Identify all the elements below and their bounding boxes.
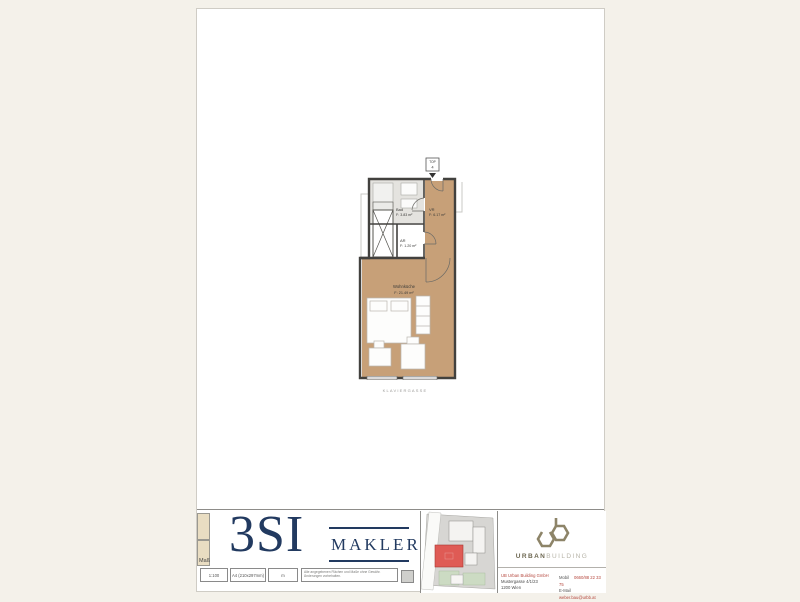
room-ar-name: AR: [400, 238, 406, 243]
scale-cell: 1:100: [200, 568, 228, 582]
room-bad-name: Bad: [396, 207, 403, 212]
broker-logo-main: 3SI: [229, 509, 304, 561]
developer-divider: [498, 567, 606, 568]
broker-logo-sub: MAKLER: [331, 535, 421, 555]
room-vr-area: F: 6.17 m²: [429, 213, 446, 217]
site-small-building: [451, 575, 463, 584]
room-wohnkueche-area: F: 21.49 m²: [394, 291, 414, 295]
floor-plan-drawing: TOP 4 Bad F: 3.83 m² VR F: 6.17 m² AR F:…: [347, 154, 467, 406]
developer-section: URBANBUILDING UB Urban Building GmbH Mus…: [498, 511, 606, 593]
broker-logo-rule-top: [329, 527, 409, 529]
revision-box: [401, 570, 414, 583]
unit-label: TOP 4: [426, 158, 439, 178]
titleblock-index-cell-1: [197, 513, 210, 540]
measure-label: Maß: [199, 558, 210, 564]
screenshot-root: { "floor_plan": { "unit_label": { "top":…: [0, 0, 800, 600]
unit-label-top: TOP: [429, 160, 436, 164]
unit-cell: m: [268, 568, 298, 582]
site-highlighted-building: [435, 545, 463, 567]
room-ar-area: F: 1.20 m²: [400, 244, 417, 248]
developer-address2: 1200 Wien: [501, 585, 549, 591]
developer-logo-icon: [525, 515, 581, 555]
street-label: KLAVIERGASSE: [383, 388, 428, 393]
developer-logo-bold: URBAN: [516, 553, 546, 560]
plan-sheet: TOP 4 Bad F: 3.83 m² VR F: 6.17 m² AR F:…: [196, 8, 605, 592]
developer-logo-name: URBANBUILDING: [498, 553, 606, 560]
shaft: [373, 202, 393, 257]
disclaimer-cell: Alle angegebenen Flächen und Maße ohne G…: [301, 568, 398, 582]
entrance-opening: [431, 177, 443, 181]
format-cell: A4 (210x297mm): [230, 568, 266, 582]
room-vr-name: VR: [429, 207, 435, 212]
developer-contact-block: Mobil0660/88 22 33 75 E-Mailweber.bau@ur…: [559, 575, 606, 602]
site-plan: [420, 511, 498, 593]
room-bad-area: F: 3.83 m²: [396, 213, 413, 217]
broker-logo-rule-bottom: [329, 560, 409, 562]
developer-logo-light: BUILDING: [546, 553, 588, 560]
site-plan-map: [421, 511, 497, 591]
mobile-label: Mobil: [559, 575, 574, 582]
contact-mobile-row: Mobil0660/88 22 33 75: [559, 575, 606, 588]
room-wohnkueche-name: Wohnküche: [393, 284, 416, 289]
email-label: E-Mail: [559, 588, 574, 595]
developer-address-block: UB Urban Building GmbH Mustergasse 4/1/2…: [501, 573, 549, 591]
email-value: weber.bau@urbb.at: [559, 595, 596, 600]
